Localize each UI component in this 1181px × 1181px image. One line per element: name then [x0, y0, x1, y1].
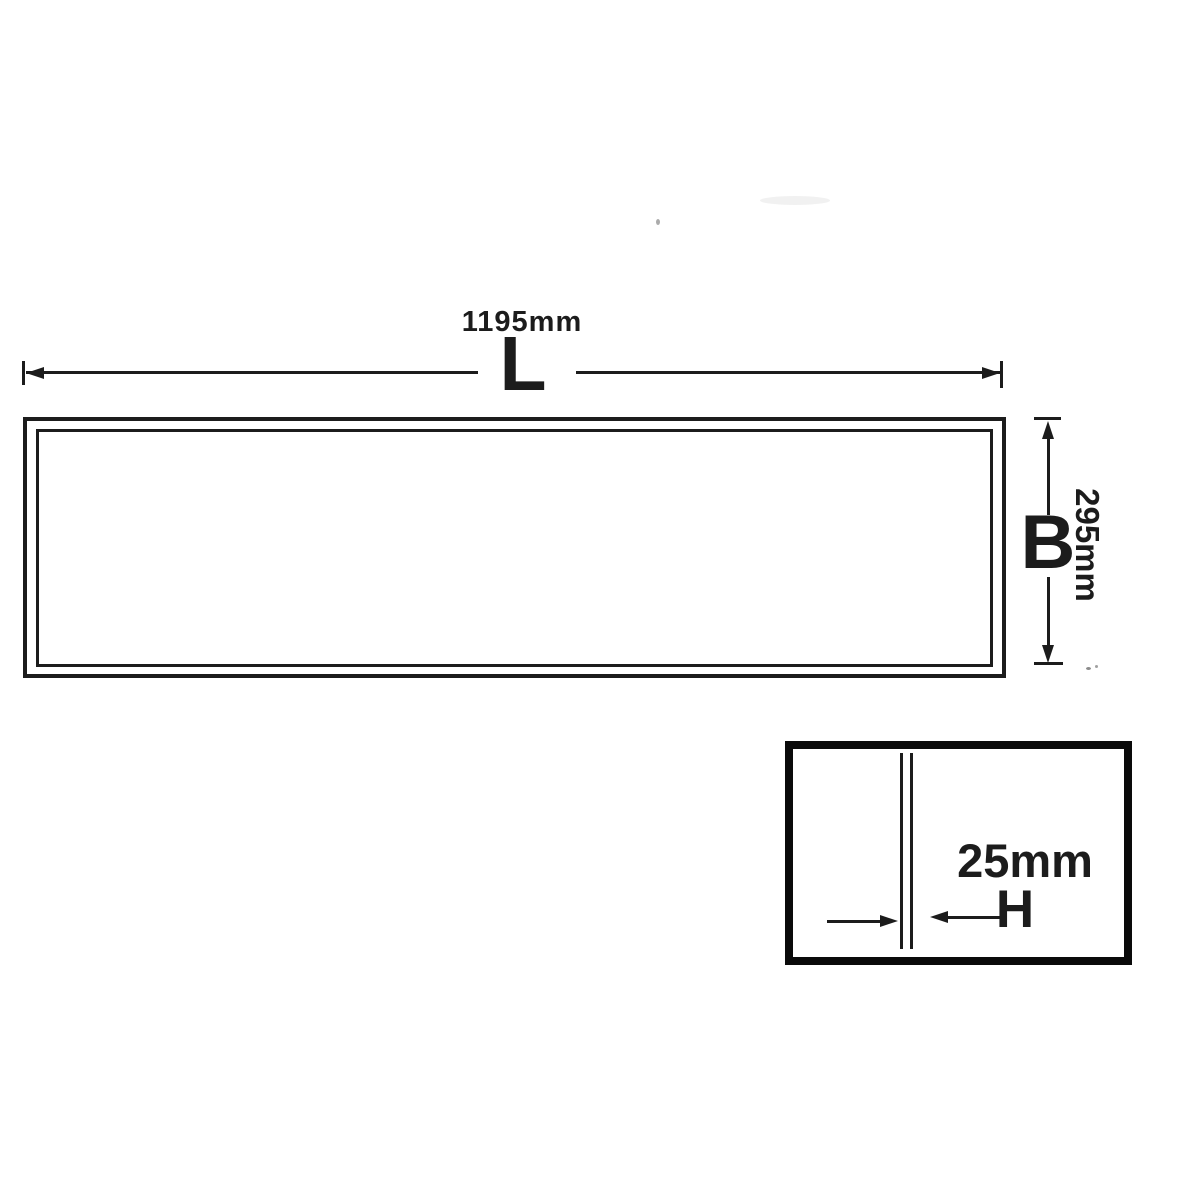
thickness-symbol-label: H: [975, 883, 1055, 936]
scan-speck: [1086, 667, 1091, 670]
width-value-label: 295mm: [1069, 485, 1105, 605]
dimension-tick-left: [22, 361, 25, 385]
dimension-line-right-segment: [576, 371, 1000, 374]
scan-speck: [656, 219, 660, 225]
dimension-tick-right: [1000, 361, 1003, 388]
arrowhead-down-icon: [1042, 645, 1054, 663]
panel-edge-line-outer: [900, 753, 903, 949]
dimension-line-lower-segment: [1047, 577, 1050, 647]
panel-inner-frame: [36, 429, 993, 667]
arrowhead-pointing-right-icon: [880, 915, 898, 927]
dimension-line-left-segment: [26, 371, 478, 374]
panel-edge-line-inner: [910, 753, 913, 949]
scan-speck: [1095, 665, 1098, 668]
thickness-arrow-left-line: [827, 920, 883, 923]
thickness-value-label: 25mm: [935, 837, 1115, 884]
thickness-arrow-right-line: [945, 916, 1000, 919]
dimension-tick-bottom: [1034, 662, 1063, 665]
dimension-diagram: 1195mm L B 295mm 25mm H: [0, 0, 1181, 1181]
arrowhead-right-icon: [982, 367, 1000, 379]
scan-smudge: [760, 196, 830, 205]
dimension-tick-top: [1034, 417, 1061, 420]
length-symbol-label: L: [478, 326, 568, 403]
